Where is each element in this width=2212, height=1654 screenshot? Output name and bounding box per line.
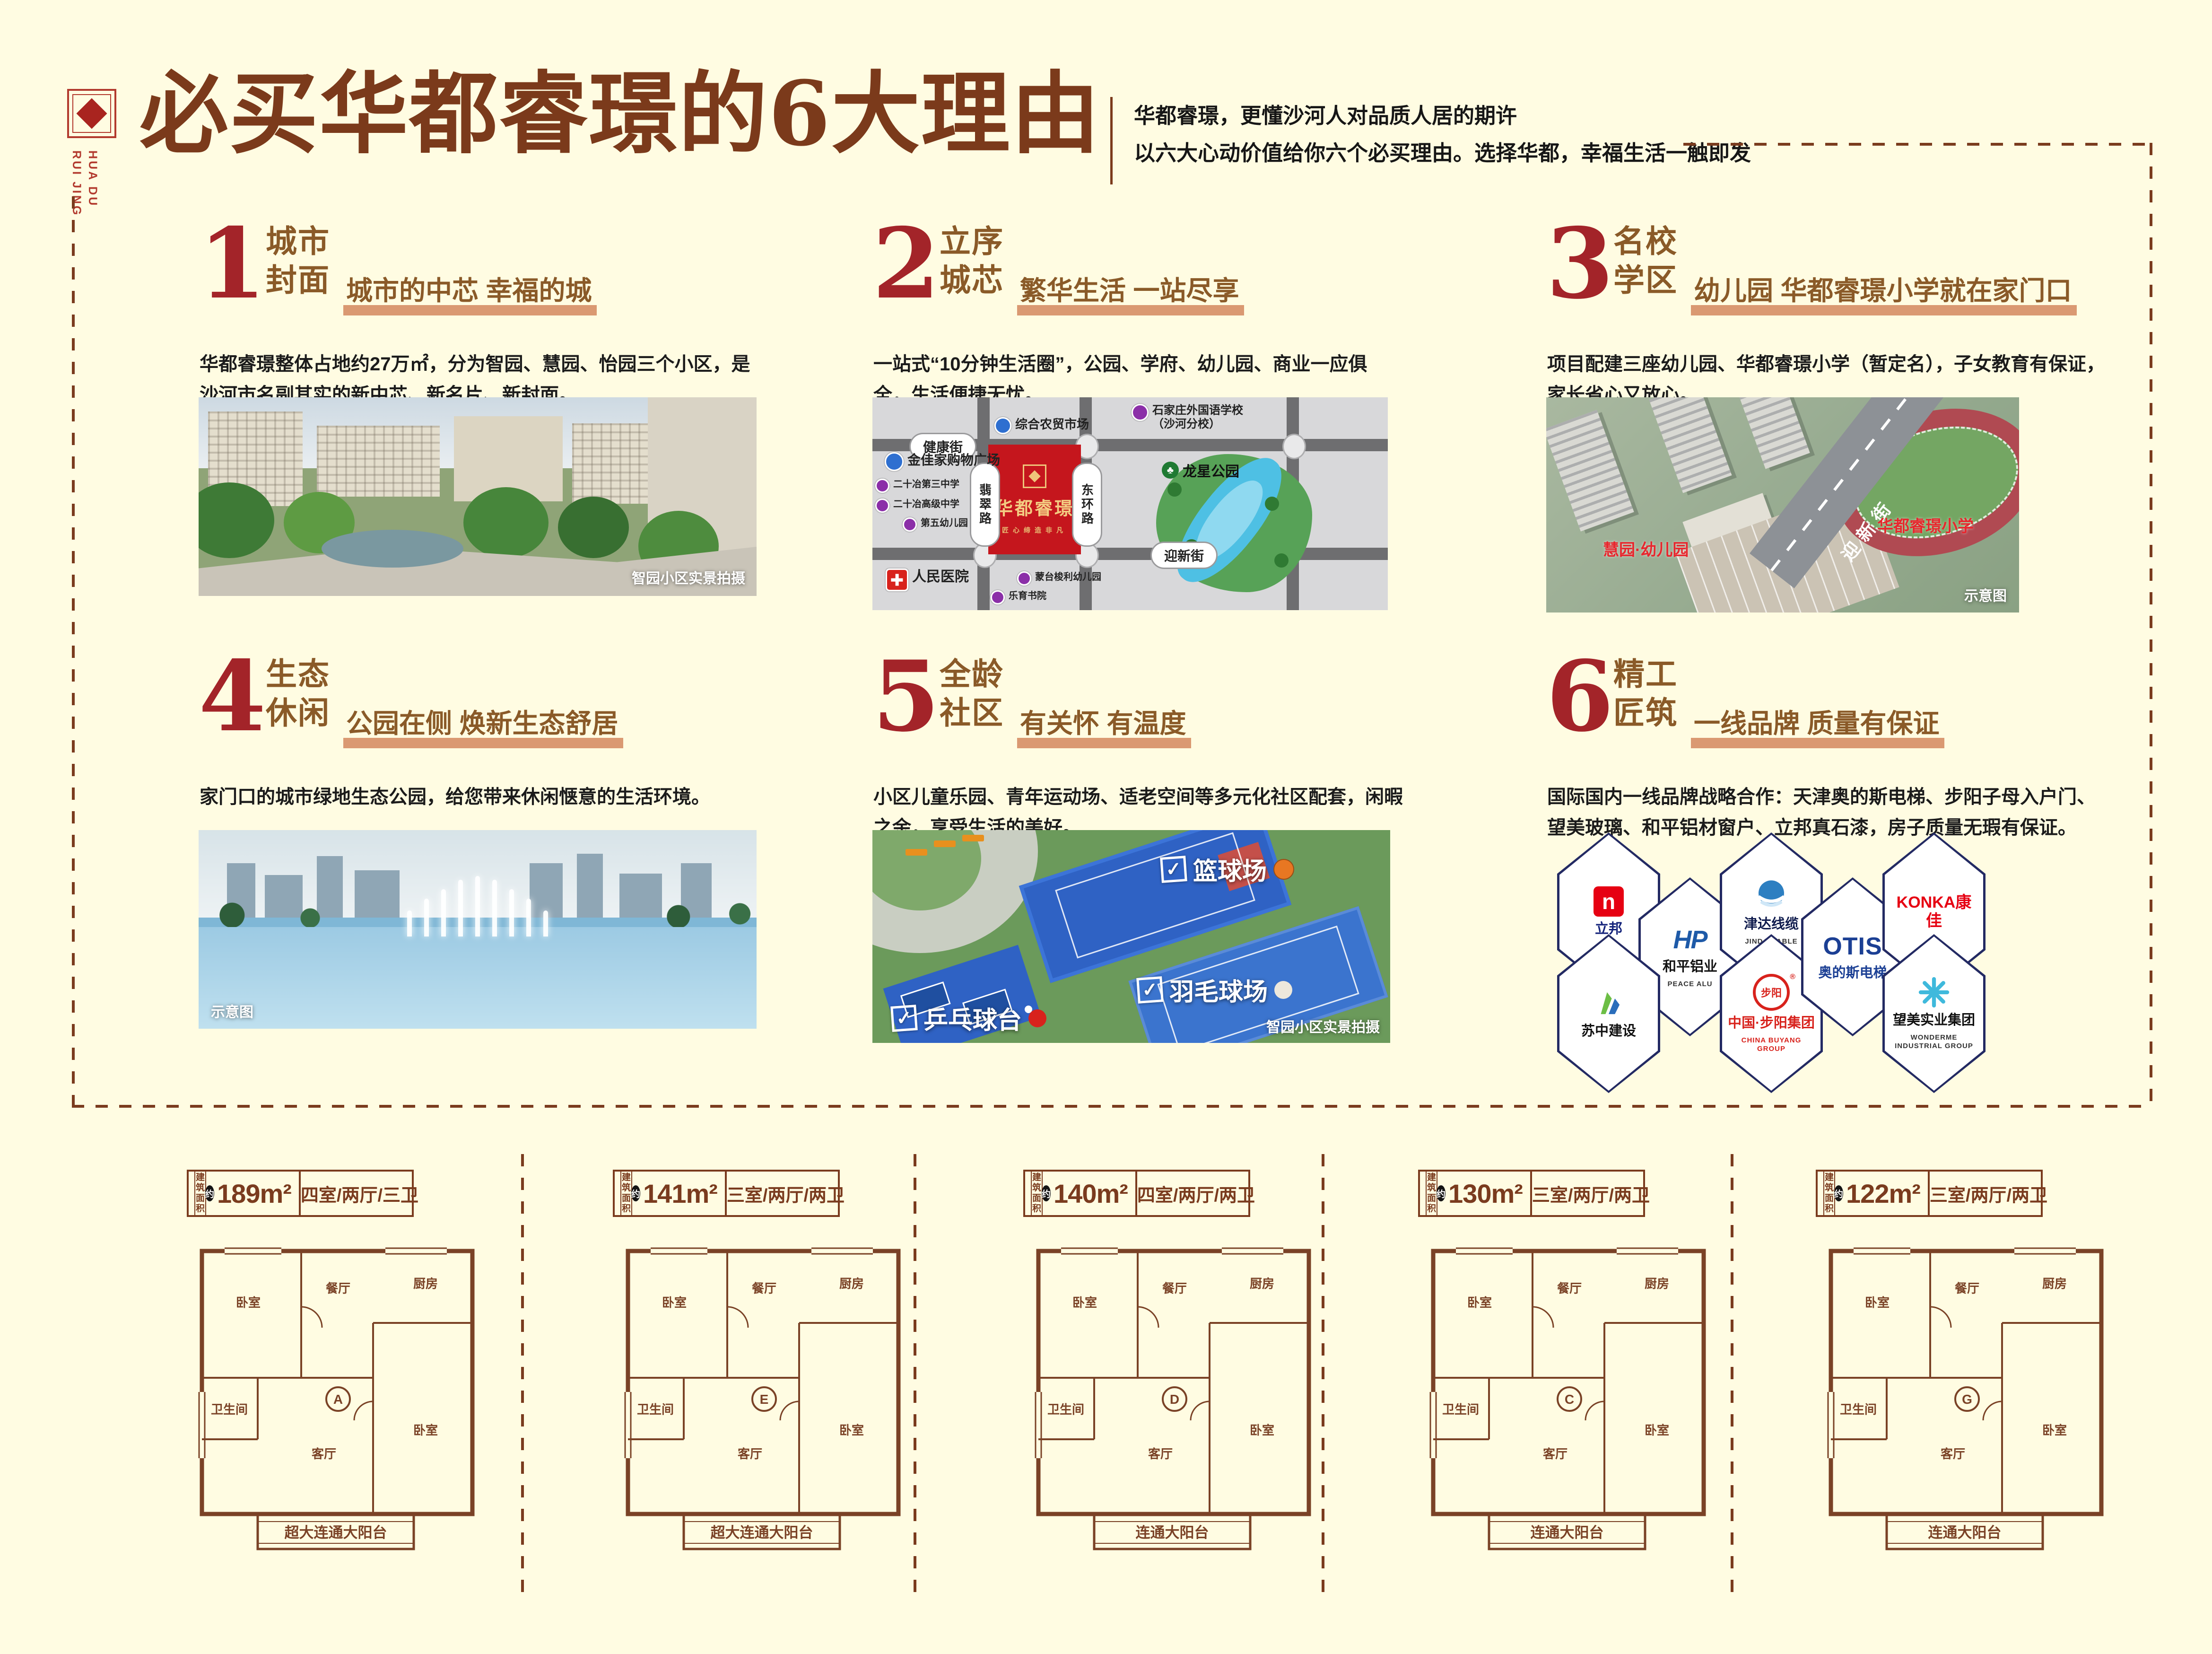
brand-name-en: CHINA BUYANG GROUP (1728, 1036, 1815, 1053)
school-icon (875, 479, 889, 493)
tree (463, 487, 549, 558)
checkbox-icon: ✓ (890, 1005, 918, 1032)
fountain (340, 875, 615, 936)
room-label: 厨房 (1250, 1277, 1274, 1291)
brand-name-cn: 望美实业集团 (1893, 1013, 1975, 1028)
room-label: 卧室 (1865, 1295, 1890, 1310)
page-title: 必买华都睿璟的6大理由 (139, 61, 1101, 167)
area-stamp: 建筑面积 (1426, 1171, 1437, 1216)
map-poi-mall: 金佳家购物广场 (885, 452, 1000, 471)
kindergarten-icon (903, 517, 917, 532)
project-ornament-icon (1023, 464, 1046, 488)
project-block: 华都睿璟 匠心缔造非凡 (988, 445, 1081, 554)
map-poi-school: 石家庄外国语学校 （沙河分校） (1132, 404, 1243, 431)
room-config: 三室/两厅/两卫 (1928, 1172, 2047, 1215)
section-title: 精工 匠筑 (1613, 655, 1678, 733)
market-icon (994, 417, 1011, 434)
section-title: 城市 封面 (266, 222, 330, 300)
room-label: 客厅 (312, 1447, 336, 1461)
building (572, 423, 653, 504)
panel-divider (521, 1154, 524, 1601)
kindergarten-icon (1017, 571, 1031, 586)
floor-area: 141m² (643, 1178, 717, 1209)
brand-name-cn: KONKA康佳 (1890, 893, 1977, 930)
section-tagline: 有关怀 有温度 (1020, 702, 1186, 741)
brand-honeycomb: n 立邦 HP 和平铝业 PEACE ALU 津达线缆 JINDA CABLE … (1556, 832, 2057, 1102)
brand-logo-icon (67, 89, 116, 138)
brand-name-cn: 和平铝业 (1663, 959, 1717, 975)
building (1736, 397, 1810, 469)
nippon-paint-icon: n (1594, 886, 1624, 917)
floor-area: 130m² (1448, 1178, 1523, 1209)
room-label: 卧室 (839, 1423, 864, 1437)
section-tagline: 公园在侧 焕新生态舒居 (346, 702, 618, 741)
intersection (1282, 434, 1306, 459)
checkbox-icon: ✓ (1136, 976, 1164, 1004)
tag-badminton: ✓ 羽毛球场 (1137, 972, 1292, 1007)
balcony-label: 连通大阳台 (1136, 1524, 1209, 1541)
section-number: 5 (872, 648, 940, 745)
room-label: 餐厅 (1557, 1281, 1582, 1295)
floor-area: 122m² (1846, 1178, 1920, 1209)
brand-hex-wonderme: 望美实业集团 WONDERME INDUSTRIAL GROUP (1882, 934, 1986, 1093)
room-label: 卧室 (1645, 1423, 1669, 1437)
section-number: 4 (199, 648, 266, 745)
room-label: 餐厅 (326, 1281, 350, 1295)
room-label: 卧室 (662, 1295, 687, 1310)
mall-icon (885, 452, 904, 471)
wonderme-snowflake-icon (1918, 977, 1950, 1008)
room-config: 三室/两厅/两卫 (725, 1172, 845, 1215)
room-label: 卧室 (1072, 1295, 1097, 1310)
balcony-label: 连通大阳台 (1531, 1524, 1604, 1541)
floorplan-drawing: 卧室 餐厅 厨房 卫生间 客厅 卧室 C 连通大阳台 (1413, 1236, 1725, 1567)
floor-area: 140m² (1054, 1178, 1128, 1209)
area-stamp: 建筑面积 (1823, 1171, 1835, 1216)
room-label: 卫生间 (637, 1402, 674, 1417)
room-label: 卫生间 (1047, 1402, 1084, 1417)
unit-letter: A (333, 1392, 343, 1407)
map-poi-market: 综合农贸市场 (994, 417, 1089, 434)
room-label: 卧室 (236, 1295, 261, 1310)
section-title: 生态 休闲 (266, 655, 330, 733)
room-config: 四室/两厅/两卫 (1135, 1172, 1255, 1215)
room-config: 四室/两厅/三卫 (299, 1172, 418, 1215)
render-caption: 示意图 (1964, 584, 2007, 605)
poi-label: 蒙台梭利幼儿园 (1035, 571, 1101, 583)
floorplan-drawing: 卧室 餐厅 厨房 卫生间 客厅 卧室 E 超大连通大阳台 (608, 1236, 920, 1567)
map-poi-hospital: 人民医院 (886, 569, 969, 591)
tag-pingpong: ✓ 乒乓球台 (891, 1000, 1046, 1036)
room-label: 客厅 (738, 1447, 762, 1461)
street-label-south: 迎新街 (1150, 542, 1218, 569)
section-number: 6 (1546, 648, 1614, 745)
section-tagline: 一线品牌 质量有保证 (1694, 702, 1940, 741)
school-label: 华都睿璟小学 (1877, 513, 1974, 536)
area-stamp: 建筑面积 (194, 1171, 206, 1216)
brand-name-en: PEACE ALU (1667, 980, 1712, 989)
basketball-icon (1273, 859, 1294, 880)
map-poi-kindergarten: 第五幼儿园 (903, 517, 968, 532)
approx-badge: 约 (1437, 1185, 1446, 1201)
section-body: 家门口的城市绿地生态公园，给您带来休闲惬意的生活环境。 (200, 782, 758, 813)
section-title: 全龄 社区 (940, 655, 1004, 733)
room-label: 卫生间 (1840, 1402, 1877, 1417)
photo-caption: 示意图 (211, 1000, 253, 1021)
park-icon: ♣ (1162, 462, 1179, 479)
project-name: 华都睿璟 (995, 494, 1074, 520)
location-map: ♣ 龙星公园 华都睿璟 匠心缔造非凡 健康街 迎新街 翡翠路 东环路 综合农贸市… (872, 397, 1388, 610)
poi-label: 乐育书院 (1009, 590, 1046, 602)
room-label: 卫生间 (211, 1402, 248, 1417)
photo-caption: 智园小区实景拍摄 (632, 567, 745, 587)
suzhong-icon (1592, 988, 1625, 1019)
otis-wordmark: OTIS (1823, 932, 1882, 961)
poi-label: 第五幼儿园 (921, 517, 968, 529)
floorplan-drawing: 卧室 餐厅 厨房 卫生间 客厅 卧室 D 连通大阳台 (1019, 1236, 1331, 1567)
jinda-globe-icon (1753, 878, 1789, 912)
poi-label: 石家庄外国语学校 （沙河分校） (1152, 404, 1243, 431)
school-aerial-render: 迎新街 慧园·幼儿园 华都睿璟小学 示意图 (1546, 397, 2019, 613)
room-label: 厨房 (2042, 1277, 2067, 1291)
floorplan-drawing: 卧室 餐厅 厨房 卫生间 客厅 卧室 G 连通大阳台 (1811, 1236, 2123, 1567)
room-label: 卧室 (413, 1423, 438, 1437)
community-photo: 智园小区实景拍摄 (199, 397, 757, 596)
room-label: 客厅 (1941, 1447, 1965, 1461)
checkbox-icon: ✓ (1160, 856, 1187, 883)
poi-label: 二十冶高级中学 (893, 499, 959, 510)
section-tagline: 幼儿园 华都睿璟小学就在家门口 (1694, 270, 2072, 308)
poster: HUA DU RUI JING 必买华都睿璟的6大理由 华都睿璟，更懂沙河人对品… (0, 0, 2212, 1654)
building (317, 426, 440, 497)
poi-label: 金佳家购物广场 (907, 452, 1000, 468)
floorplan-panel: 建筑面积 约 189m² 四室/两厅/三卫 (187, 1170, 499, 1576)
floor-area: 189m² (217, 1178, 291, 1209)
kindergarten-label: 慧园·幼儿园 (1603, 537, 1689, 560)
sports-courts-photo: ✓ 篮球场 ✓ 羽毛球场 ✓ 乒乓球台 智园小区实景拍摄 (872, 830, 1390, 1043)
floorplan-spec-header: 建筑面积 约 140m² 四室/两厅/两卫 (1023, 1170, 1250, 1217)
badminton-icon (1274, 981, 1292, 999)
peace-alu-icon: HP (1673, 925, 1707, 954)
approx-badge: 约 (1042, 1185, 1051, 1201)
unit-letter: E (760, 1392, 769, 1407)
room-config: 三室/两厅/两卫 (1530, 1172, 1650, 1215)
poi-label: 人民医院 (912, 569, 969, 586)
buyang-ring-icon: 步阳 (1753, 974, 1790, 1011)
street-label-west: 翡翠路 (970, 463, 1000, 547)
room-label: 厨房 (1645, 1277, 1669, 1291)
floorplan-panel: 建筑面积 约 130m² 三室/两厅/两卫 (1418, 1170, 1730, 1576)
section-number: 3 (1546, 216, 1614, 313)
room-label: 餐厅 (752, 1281, 776, 1295)
map-poi-kindergarten: 蒙台梭利幼儿园 (1017, 571, 1101, 586)
floorplan-spec-header: 建筑面积 约 122m² 三室/两厅/两卫 (1816, 1170, 2043, 1217)
dashed-border-left (72, 196, 75, 1105)
pingpong-icon (1028, 1009, 1046, 1027)
floorplan-drawing: 卧室 餐厅 厨房 卫生间 客厅 卧室 A 超大连通大阳台 (182, 1236, 494, 1567)
floorplan-panel: 建筑面积 约 140m² 四室/两厅/两卫 (1023, 1170, 1335, 1576)
street-label-east: 东环路 (1072, 463, 1102, 547)
room-label: 餐厅 (1162, 1281, 1187, 1295)
brand-name-cn: 津达线缆 (1744, 917, 1799, 932)
subtitle-line2: 以六大心动价值给你六个必买理由。选择华都，幸福生活一触即发 (1134, 135, 1751, 172)
lake-water (199, 927, 757, 1029)
floorplan-spec-header: 建筑面积 约 141m² 三室/两厅/两卫 (613, 1170, 840, 1217)
dashed-border-top (1683, 143, 2151, 146)
unit-letter: G (1962, 1392, 1972, 1407)
section-tagline: 城市的中芯 幸福的城 (346, 270, 592, 308)
section-number: 1 (199, 216, 266, 313)
poi-label: 二十冶第三中学 (893, 479, 959, 490)
section-tagline: 繁华生活 一站尽享 (1020, 270, 1239, 308)
building (1546, 410, 1634, 531)
area-stamp: 建筑面积 (1031, 1171, 1043, 1216)
floorplan-spec-header: 建筑面积 约 189m² 四室/两厅/三卫 (187, 1170, 414, 1217)
room-label: 卫生间 (1442, 1402, 1479, 1417)
balcony-label: 超大连通大阳台 (711, 1524, 813, 1541)
area-stamp: 建筑面积 (620, 1171, 632, 1216)
academy-icon (991, 590, 1005, 604)
room-label: 卧室 (1250, 1423, 1274, 1437)
hospital-icon (886, 569, 908, 591)
dashed-border-right (2150, 143, 2152, 1106)
photo-caption: 智园小区实景拍摄 (1266, 1015, 1380, 1036)
approx-badge: 约 (631, 1185, 640, 1201)
unit-letter: D (1170, 1392, 1179, 1407)
school-icon (1132, 404, 1149, 421)
project-slogan: 匠心缔造非凡 (1002, 525, 1067, 535)
tag-basketball: ✓ 篮球场 (1161, 851, 1294, 887)
school-icon (875, 499, 889, 513)
floorplan-panel: 建筑面积 约 122m² 三室/两厅/两卫 (1816, 1170, 2128, 1576)
room-label: 厨房 (413, 1277, 438, 1291)
floorplan-spec-header: 建筑面积 约 130m² 三室/两厅/两卫 (1418, 1170, 1645, 1217)
tree (558, 497, 629, 558)
brand-name-cn: 苏中建设 (1581, 1024, 1636, 1039)
dashed-border-bottom (72, 1105, 2151, 1108)
room-label: 厨房 (839, 1277, 864, 1291)
room-label: 客厅 (1148, 1447, 1173, 1461)
section-title: 名校 学区 (1613, 222, 1678, 300)
approx-badge: 约 (205, 1185, 214, 1201)
map-poi-school: 二十冶第三中学 (875, 479, 959, 493)
poi-label: 综合农贸市场 (1015, 417, 1089, 432)
floorplan-panel: 建筑面积 约 141m² 三室/两厅/两卫 (613, 1170, 925, 1576)
section-number: 2 (872, 216, 940, 313)
room-label: 卧室 (1467, 1295, 1492, 1310)
room-label: 客厅 (1543, 1447, 1568, 1461)
room-label: 卧室 (2042, 1423, 2067, 1437)
building (1649, 397, 1732, 493)
pond (322, 530, 463, 568)
unit-letter: C (1565, 1392, 1574, 1407)
room-label: 餐厅 (1955, 1281, 1979, 1295)
map-poi-school: 二十冶高级中学 (875, 499, 959, 513)
eco-park-photo: 示意图 (199, 830, 757, 1029)
map-poi-academy: 乐育书院 (991, 590, 1046, 604)
brand-name-en: WONDERME INDUSTRIAL GROUP (1890, 1033, 1977, 1050)
title-divider (1110, 97, 1113, 184)
balcony-label: 超大连通大阳台 (285, 1524, 387, 1541)
panel-divider (1731, 1154, 1733, 1601)
park-label: ♣ 龙星公园 (1162, 460, 1239, 481)
brand-name-cn: 奥的斯电梯 (1818, 965, 1887, 981)
balcony-label: 连通大阳台 (1928, 1524, 2002, 1541)
subtitle: 华都睿璟，更懂沙河人对品质人居的期许 以六大心动价值给你六个必买理由。选择华都，… (1134, 97, 1751, 172)
road-yingxin (872, 548, 1388, 560)
approx-badge: 约 (1834, 1185, 1843, 1201)
brand-hex-suzhong: 苏中建设 (1557, 934, 1660, 1093)
subtitle-line1: 华都睿璟，更懂沙河人对品质人居的期许 (1134, 97, 1751, 135)
section-title: 立序 城芯 (940, 222, 1004, 300)
